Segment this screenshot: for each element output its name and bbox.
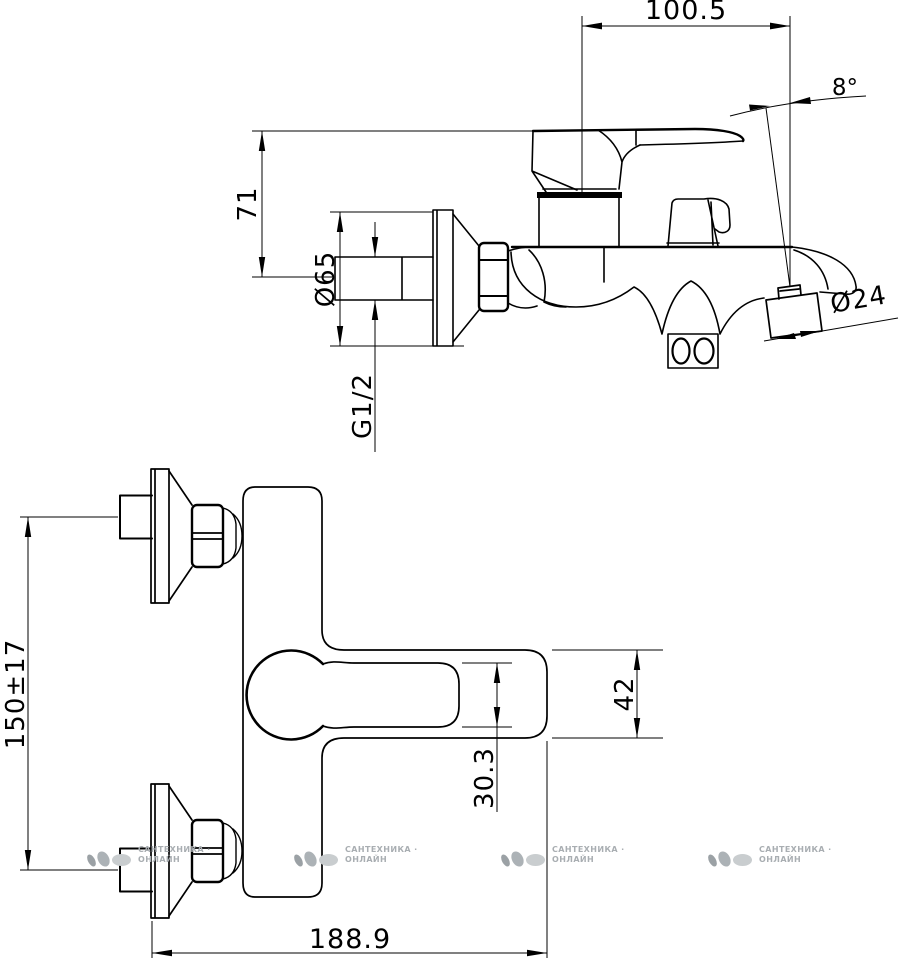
- technical-drawing-page: 100.5 8° 71 Ø65 G1/2: [0, 0, 904, 962]
- front-inlet-bottom-cone: [169, 786, 192, 916]
- dim-150-lines: [20, 517, 118, 870]
- dimension-inlet-spacing-150: 150±17: [1, 517, 118, 870]
- front-inlet-top-nut: [192, 505, 223, 567]
- dim-8deg-label: 8°: [832, 75, 858, 101]
- front-view-dimensions: 150±17 30.3 42 188.9: [1, 517, 663, 958]
- dim-65-arrow-top: [337, 212, 343, 232]
- dim-24-arrow-left: [775, 333, 796, 339]
- side-cartridge-band: [537, 192, 622, 198]
- front-body-outline: [243, 487, 547, 897]
- side-flange-cone: [453, 214, 479, 342]
- dim-42-arrow-bottom: [634, 718, 640, 738]
- front-inlet-bottom-pipe-block: [120, 849, 152, 892]
- dimension-body-42: 42: [552, 650, 663, 738]
- dim-188-9-label: 188.9: [309, 924, 391, 955]
- side-shower-hole-right: [695, 339, 714, 364]
- dim-71-arrow-top: [259, 131, 265, 151]
- front-inlet-bottom-flange: [151, 784, 169, 918]
- dim-150-label: 150±17: [1, 639, 31, 750]
- side-handle-neck: [598, 130, 640, 189]
- dim-30-3-label: 30.3: [470, 747, 500, 809]
- dim-100-5-label: 100.5: [645, 0, 727, 26]
- dimension-angle-8deg: 8°: [730, 75, 866, 287]
- side-nut-facets: [479, 260, 508, 296]
- front-handle-knob-arc: [247, 651, 323, 740]
- dim-g12-arrow-bottom: [372, 300, 378, 320]
- dim-42-label: 42: [610, 676, 640, 711]
- dim-65-arrow-bottom: [337, 326, 343, 346]
- dim-188-9-arrow-right: [527, 950, 547, 956]
- front-inlet-bottom-boss: [223, 823, 242, 879]
- front-inlet-top-boss: [223, 508, 242, 564]
- side-wall-flange: [433, 210, 453, 346]
- dimension-aerator-dia-24: Ø24: [764, 280, 898, 341]
- dimension-height-71: 71: [233, 131, 533, 277]
- front-inlet-bottom-nut-facets: [192, 848, 223, 854]
- dim-24-arrow-right: [800, 331, 820, 337]
- side-shower-outlet-box: [668, 334, 718, 368]
- side-shower-hole-left: [673, 339, 690, 364]
- side-aerator-outlet: [766, 285, 822, 338]
- dim-30-3-arrow-top: [494, 663, 500, 683]
- dim-42-lines: [552, 650, 663, 738]
- side-body-bottom-contour: [511, 247, 764, 334]
- front-inlet-top-cone: [169, 471, 192, 601]
- dim-71-label: 71: [233, 186, 263, 221]
- front-inlet-top: [120, 469, 242, 603]
- dim-g12-arrow-top: [372, 237, 378, 257]
- side-handle-top-edge: [533, 129, 743, 141]
- dim-8deg-arrow-b: [790, 97, 811, 104]
- faucet-dimension-drawing: 100.5 8° 71 Ø65 G1/2: [0, 0, 904, 962]
- front-inlet-top-flange: [151, 469, 169, 603]
- dim-65-label: Ø65: [311, 251, 341, 308]
- side-view: [335, 129, 856, 368]
- dim-30-3-arrow-bottom: [494, 707, 500, 727]
- dim-150-arrow-top: [25, 517, 31, 537]
- dimension-flange-dia-65: Ø65: [311, 212, 464, 346]
- dim-65-lines: [330, 212, 464, 346]
- front-inlet-bottom: [120, 784, 242, 918]
- front-view: [120, 469, 547, 918]
- side-view-dimensions: 100.5 8° 71 Ø65 G1/2: [233, 0, 898, 452]
- dim-24-label: Ø24: [828, 280, 889, 319]
- side-diverter-knob: [667, 198, 730, 246]
- dim-71-lines: [252, 131, 533, 277]
- front-inlet-top-pipe-block: [120, 496, 152, 539]
- side-connection-nut: [479, 243, 508, 311]
- dim-g12-label: G1/2: [348, 373, 378, 439]
- dim-100-5-arrow-left: [582, 23, 602, 30]
- dim-188-9-arrow-left: [152, 950, 172, 956]
- dim-150-arrow-bottom: [25, 850, 31, 870]
- dim-42-arrow-top: [634, 650, 640, 670]
- dim-8deg-slant-line: [766, 108, 790, 287]
- front-inlet-top-nut-facets: [192, 533, 223, 539]
- side-handle-back-edge: [532, 131, 577, 192]
- front-inlet-bottom-nut: [192, 820, 223, 882]
- front-handle-bar: [323, 662, 459, 728]
- dim-71-arrow-bottom: [259, 257, 265, 277]
- dim-100-5-arrow-right: [770, 23, 790, 30]
- side-wall-pipe: [335, 257, 433, 300]
